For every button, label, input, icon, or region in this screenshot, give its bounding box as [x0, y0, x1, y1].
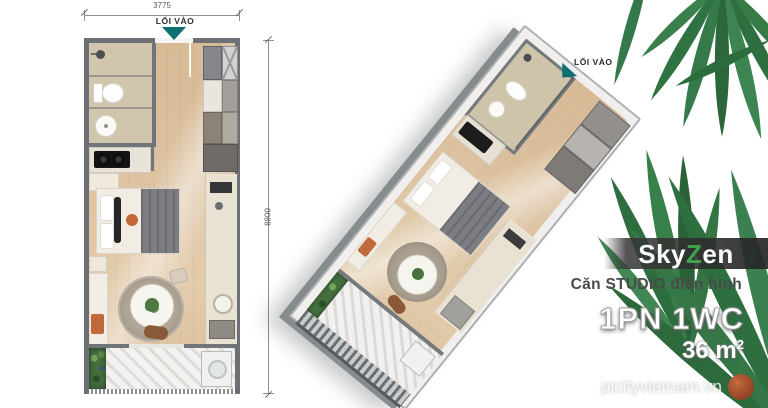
dimension-width-label: 3775 — [84, 1, 240, 10]
technical-box — [222, 46, 238, 80]
balcony-railing — [89, 389, 235, 394]
dimension-height-label: 8800 — [264, 197, 273, 237]
toilet-icon — [502, 77, 531, 105]
blanket — [141, 189, 179, 253]
dining-table — [130, 284, 174, 328]
pillow — [100, 195, 114, 221]
unit-subtitle: Căn STUDIO điển hình — [571, 276, 742, 294]
side-table — [89, 256, 107, 272]
pillow — [100, 223, 114, 249]
entrance-label-3d: LỐI VÀO — [574, 57, 612, 67]
sofa-cushion — [91, 314, 104, 334]
bed-throw — [114, 197, 121, 243]
wood-floor — [303, 39, 627, 397]
cooktop-icon — [94, 151, 130, 168]
bathroom — [89, 43, 156, 147]
table-plant-icon — [145, 298, 159, 312]
pillow — [427, 158, 453, 185]
brand-prefix: Sky — [638, 241, 686, 267]
sofa — [89, 273, 108, 347]
wardrobe — [222, 112, 238, 144]
unit-area: 36 m2 — [682, 337, 744, 365]
wardrobe — [203, 46, 222, 80]
dimension-height: 8800 — [262, 40, 276, 394]
wardrobe — [203, 80, 222, 112]
entrance-arrow-icon — [162, 27, 186, 40]
wardrobe — [203, 112, 222, 144]
picity-logo-icon — [728, 374, 754, 400]
wardrobe-column — [544, 101, 629, 193]
sink-icon — [95, 115, 117, 137]
kitchen-cabinet-column — [205, 174, 237, 344]
pillow — [409, 180, 435, 207]
bed — [96, 188, 180, 254]
floor-plan-2d — [84, 38, 240, 394]
apartment-slab — [289, 25, 642, 408]
brand-suffix: en — [702, 241, 733, 267]
watermark: picityvietnam.vn — [601, 374, 754, 400]
cushion — [126, 214, 138, 226]
washing-machine-icon — [201, 351, 232, 387]
microwave-icon — [210, 182, 232, 193]
kitchen-counter — [89, 147, 151, 173]
floor-plan-3d — [289, 25, 642, 408]
entrance-door — [189, 43, 191, 77]
kitchen-sink-icon — [213, 294, 233, 314]
floorplan-marketing-image: 3775 8800 LỐI VÀO — [0, 0, 768, 408]
watermark-text: picityvietnam.vn — [601, 377, 722, 397]
toilet-bowl-icon — [102, 83, 124, 103]
balcony-plants — [307, 272, 349, 319]
kettle-icon — [215, 202, 223, 210]
cabinet — [203, 144, 238, 172]
appliance — [209, 320, 235, 339]
balcony — [89, 348, 235, 389]
shower-head-icon — [522, 52, 533, 63]
brand-accent-letter: Z — [686, 241, 702, 267]
entrance-label-2d: LỐI VÀO — [120, 16, 230, 26]
balcony-plants — [89, 348, 106, 389]
shower-head-icon — [96, 50, 105, 59]
sink-icon — [485, 97, 509, 121]
wardrobe — [222, 80, 238, 112]
unit-type: 1PN 1WC — [599, 301, 744, 337]
brand-logo: SkyZen — [604, 238, 768, 269]
